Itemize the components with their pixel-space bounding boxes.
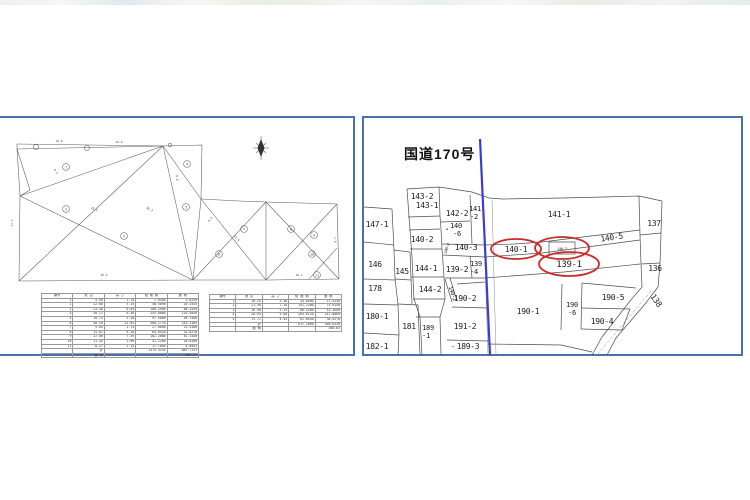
parcel-label-181: 181 — [402, 322, 416, 331]
survey-point-number: 9 — [313, 233, 315, 237]
cadastral-map-drawing: 143-2143-1142-2141-2140-6•147-1140-2140-… — [364, 118, 741, 355]
survey-point-number: 7 — [243, 227, 245, 231]
dimension-label: 8.6 — [175, 175, 179, 181]
parcel-label-190-5: 190-5 — [602, 293, 625, 302]
parcel-label-190-4: 190-4 — [591, 317, 614, 326]
cropped-toolbar-strip — [0, 0, 750, 5]
dimension-label: 25.1 — [90, 206, 98, 212]
area-calc-table-1: 番号底 辺高 さ倍 面 積面 積14.501.707.65003.8250212… — [41, 293, 199, 358]
parcel-label-140-6b: -6 — [453, 230, 461, 238]
dimension-label: 9.3 — [53, 168, 59, 175]
parcel-label-140-3: 140-3 — [455, 243, 478, 252]
parcel-label-139-4: 139 — [470, 260, 482, 268]
parcel-label-140-1: 140-1 — [505, 245, 528, 254]
parcel-label-189-1b: -1 — [422, 332, 430, 340]
parcel-label-139-1: 139-1 — [556, 260, 582, 270]
survey-point-number: 4 — [186, 162, 188, 166]
parcel-label-143-2: 143-2 — [411, 192, 434, 201]
survey-point-number: 2 — [65, 207, 67, 211]
dimension-label: 10.1 — [295, 273, 302, 277]
parcel-label-147-1: 147-1 — [366, 220, 389, 229]
table-row: 面 積308.63 — [210, 327, 342, 332]
dimension-label: 18.3 — [145, 206, 153, 213]
parcel-label-190-1: 190-1 — [517, 307, 540, 316]
survey-point-number: 6 — [218, 252, 220, 256]
parcel-label-189-3: 189-3 — [457, 342, 480, 351]
survey-point-number: 8 — [290, 227, 292, 231]
parcel-label-137: 137 — [647, 219, 661, 228]
survey-point-number: 1 — [65, 165, 67, 169]
survey-plot-panel[interactable]: 12.823.49.325.111.230.28.618.315.410.17.… — [0, 116, 355, 356]
survey-dot: • — [446, 227, 449, 233]
route-170-road-line — [480, 139, 490, 355]
survey-point-number: 5 — [185, 205, 187, 209]
parcel-label-141-1: 141-1 — [548, 210, 571, 219]
parcel-label-140-6: 140 — [450, 222, 462, 230]
dimension-label: 23.4 — [115, 140, 122, 144]
dimension-label: 15.4 — [233, 234, 241, 242]
parcel-label-190-6: 190 — [566, 301, 578, 309]
survey-point-number: 10 — [310, 252, 314, 256]
dimension-label: 30.2 — [100, 273, 107, 277]
dimension-label: 12.8 — [55, 139, 62, 143]
parcel-label-140-7: 140-7 — [557, 247, 566, 251]
parcel-label-143-1: 143-1 — [416, 201, 439, 210]
parcel-label-141-2: 141 — [469, 205, 481, 213]
cadastral-map-panel[interactable]: 国道170号 — [362, 116, 743, 356]
dimension-label: 7.9 — [333, 237, 337, 243]
table-row: 面 積689.71 — [42, 353, 199, 358]
parcel-label-138: 138 — [648, 292, 663, 309]
dimension-label: 6.2 — [207, 216, 214, 223]
parcel-label-145: 145 — [395, 267, 409, 276]
parcel-label-144-2: 144-2 — [419, 285, 442, 294]
parcel-label-139-4b: -4 — [470, 268, 478, 276]
parcel-label-190-2: 190-2 — [454, 294, 477, 303]
parcel-label-180-1: 180-1 — [366, 312, 389, 321]
north-arrow-compass — [253, 136, 269, 160]
area-calc-table-2: 番号底 辺高 さ倍 面 積面 積110.253.4034.850017.4250… — [209, 294, 342, 332]
parcel-label-140-5: 140-5 — [600, 231, 624, 243]
parcel-label-144-1: 144-1 — [415, 264, 438, 273]
survey-point-number: 3 — [123, 234, 125, 238]
parcel-label-141-2b: -2 — [470, 213, 478, 221]
parcel-label-136: 136 — [648, 264, 662, 273]
parcel-label-189-1: 189 — [422, 324, 434, 332]
parcel-label-139-2: 139-2 — [446, 265, 469, 274]
parcel-label-140-2: 140-2 — [411, 235, 434, 244]
parcel-label-178: 178 — [368, 284, 382, 293]
survey-point-number: 11 — [315, 273, 319, 277]
dimension-label: 11.2 — [10, 219, 14, 226]
parcel-label-142-2: 142-2 — [446, 209, 469, 218]
parcel-label-191-2: 191-2 — [454, 322, 477, 331]
parcel-label-182-1: 182-1 — [366, 342, 389, 351]
parcel-label-190-6b: -6 — [568, 309, 576, 317]
survey-dash: - — [451, 343, 455, 351]
parcel-label-146: 146 — [368, 260, 382, 269]
